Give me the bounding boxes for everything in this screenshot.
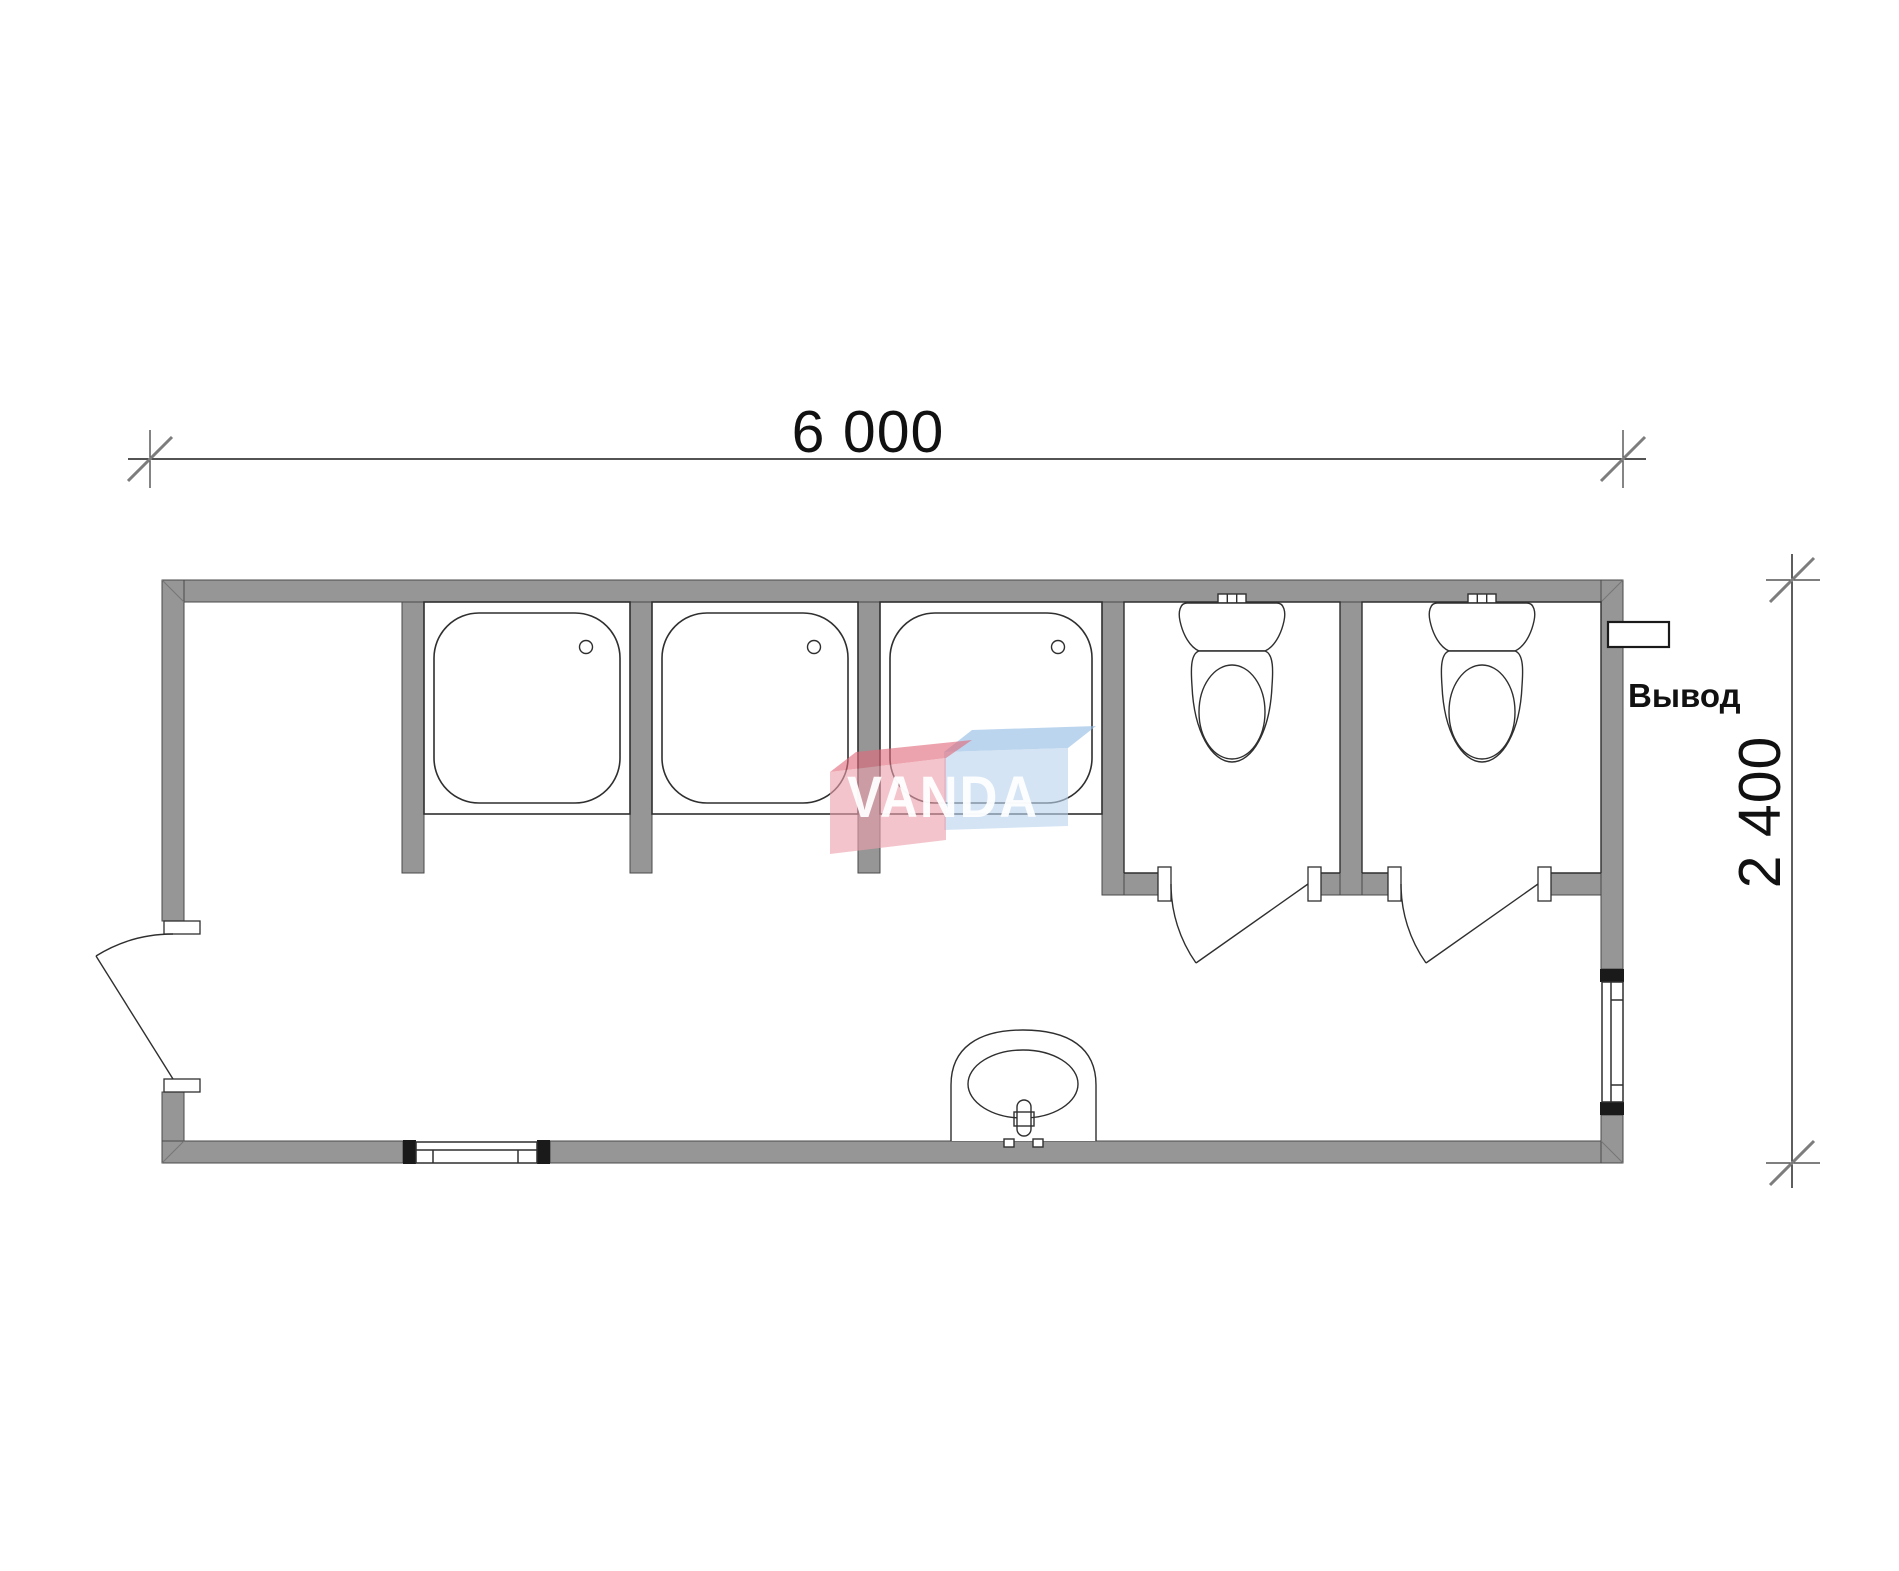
partition-2 bbox=[630, 602, 652, 873]
wc1-front-stub-right bbox=[1321, 873, 1340, 895]
wall-left-upper bbox=[162, 580, 184, 921]
outlet-label: Вывод bbox=[1628, 677, 1741, 714]
wall-bottom-right bbox=[550, 1141, 1623, 1163]
shower-cabin-2 bbox=[652, 602, 858, 814]
washbasin bbox=[951, 1030, 1096, 1147]
shower-cabin-1 bbox=[424, 602, 630, 814]
wc1-front-stub-left bbox=[1124, 873, 1158, 895]
partition-1 bbox=[402, 602, 424, 873]
dim-label-depth: 2 400 bbox=[1727, 736, 1793, 889]
window-bottom bbox=[403, 1139, 550, 1166]
wall-bottom-left bbox=[162, 1141, 403, 1163]
door-jamb bbox=[1388, 867, 1401, 901]
outlet-stub bbox=[1608, 622, 1669, 647]
pipe-stub bbox=[1004, 1139, 1014, 1147]
wc-wall-middle bbox=[1340, 602, 1362, 895]
floor-plan-page: 6 000 2 400 bbox=[0, 0, 1899, 1571]
watermark-text: VANDA bbox=[847, 765, 1039, 830]
pipe-stub bbox=[1033, 1139, 1043, 1147]
dim-label-width: 6 000 bbox=[792, 399, 945, 465]
faucet-icon bbox=[1017, 1100, 1031, 1136]
door-jamb bbox=[164, 921, 200, 934]
window-cap bbox=[403, 1140, 416, 1164]
wall-top bbox=[162, 580, 1623, 602]
window-cap bbox=[537, 1140, 550, 1164]
door-jamb bbox=[1308, 867, 1321, 901]
window-cap bbox=[1600, 1102, 1624, 1115]
door-jamb bbox=[164, 1079, 200, 1092]
door-jamb bbox=[1538, 867, 1551, 901]
door-jamb bbox=[1158, 867, 1171, 901]
window-cap bbox=[1600, 969, 1624, 982]
wc2-front-stub-right bbox=[1551, 873, 1601, 895]
shower-tray bbox=[434, 613, 620, 803]
wc-wall-left bbox=[1102, 602, 1124, 895]
plan-canvas: 6 000 2 400 bbox=[0, 0, 1899, 1571]
shower-tray bbox=[662, 613, 848, 803]
wc2-front-stub-left bbox=[1362, 873, 1388, 895]
wall-right-lower bbox=[1601, 1115, 1623, 1163]
window-right bbox=[1599, 969, 1626, 1115]
